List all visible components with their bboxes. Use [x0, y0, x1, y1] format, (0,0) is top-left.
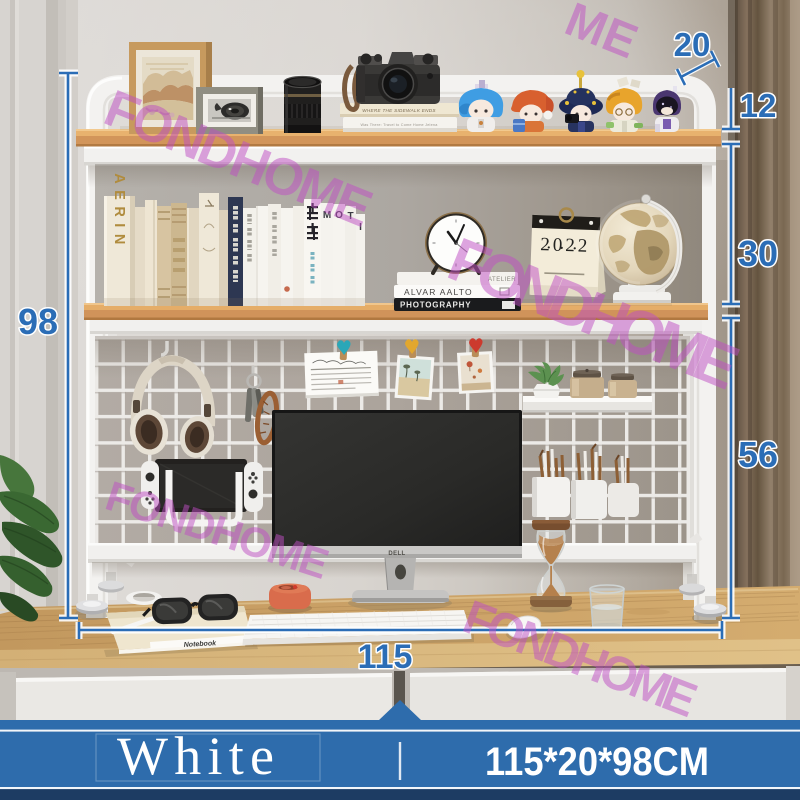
svg-text:White: White	[117, 726, 279, 786]
svg-text:30: 30	[738, 233, 778, 274]
svg-text:PHOTOGRAPHY: PHOTOGRAPHY	[400, 301, 471, 310]
svg-text:DELL: DELL	[388, 551, 405, 557]
svg-text:20: 20	[674, 26, 711, 63]
svg-text:WHERE THE SIDEWALK ENDS: WHERE THE SIDEWALK ENDS	[362, 108, 436, 113]
svg-text:115: 115	[358, 638, 413, 676]
svg-text:56: 56	[738, 434, 778, 475]
svg-text:AERIN: AERIN	[111, 173, 127, 251]
svg-text:12: 12	[740, 87, 777, 124]
svg-text:2022: 2022	[540, 234, 591, 257]
svg-text:115*20*98CM: 115*20*98CM	[485, 740, 709, 784]
svg-text:Was There: Travel to Come Home: Was There: Travel to Come Home Jelena	[360, 123, 438, 127]
svg-text:98: 98	[18, 301, 58, 342]
